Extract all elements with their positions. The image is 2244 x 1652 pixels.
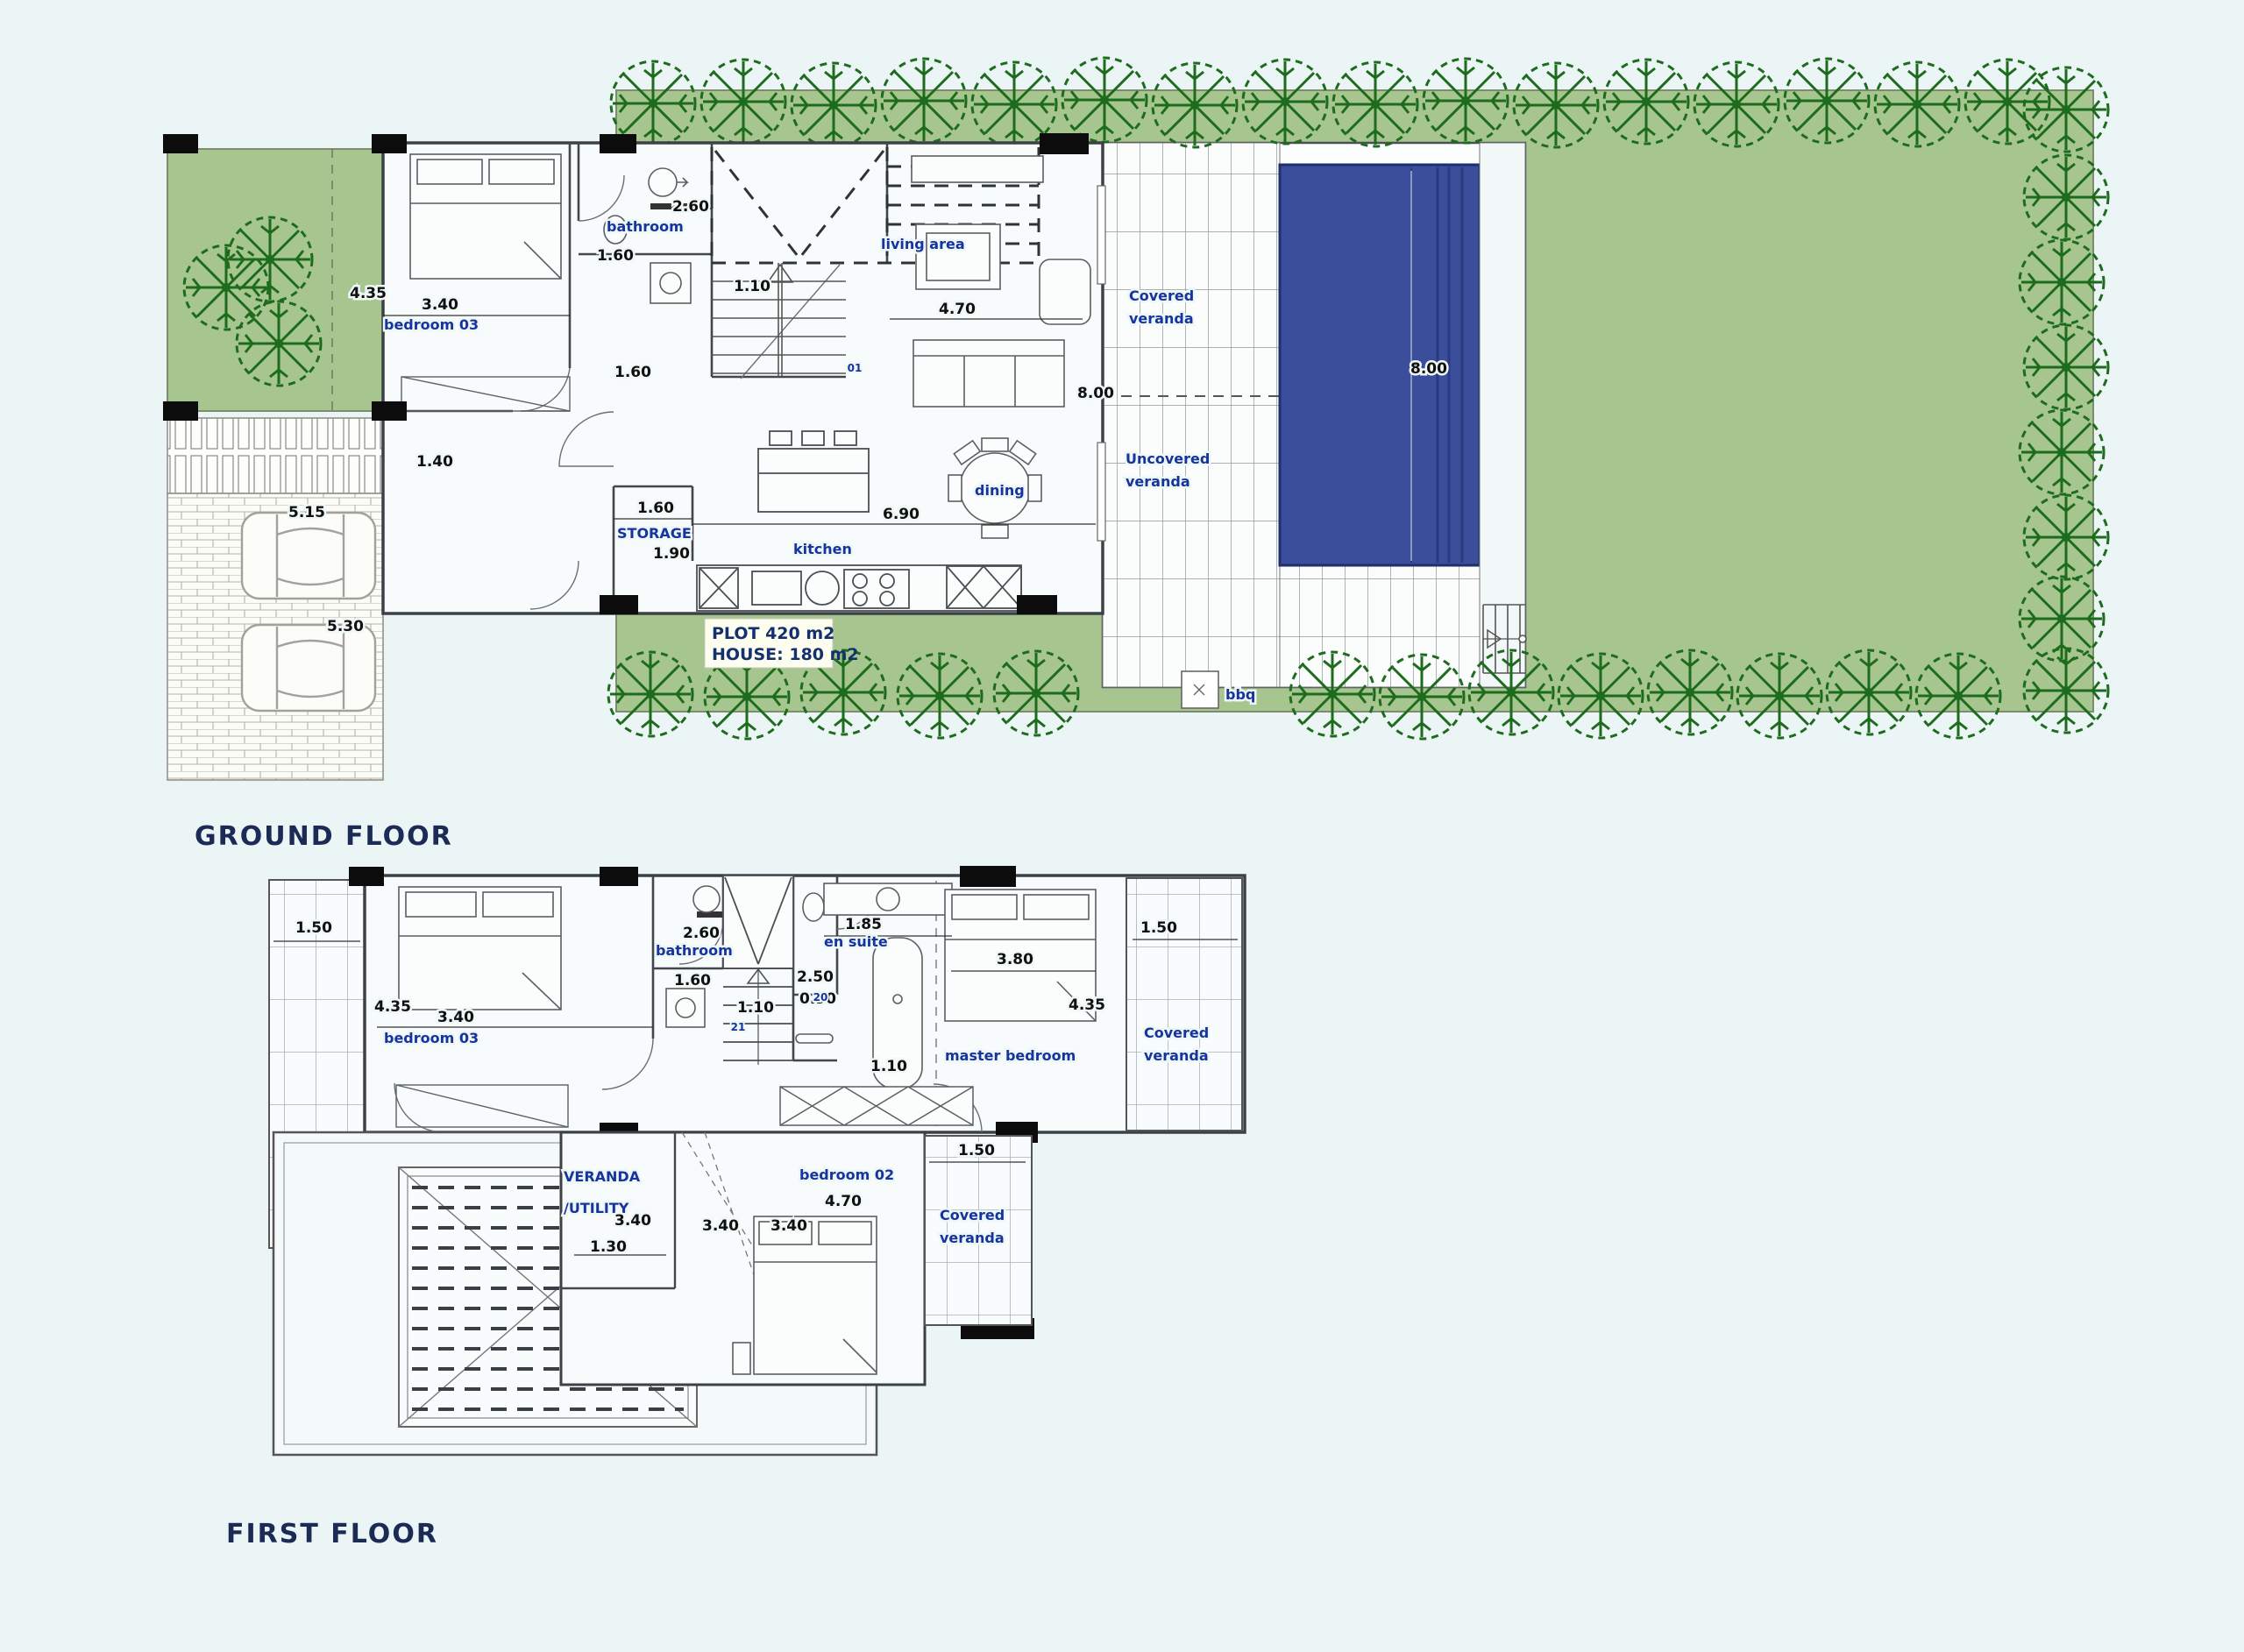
ff-dim-master-width: 3.80 <box>997 951 1033 968</box>
ff-bed3 <box>399 887 561 1010</box>
label-bathroom: bathroom <box>607 218 684 235</box>
dim-drive2: 5.30 <box>327 618 364 635</box>
coffee-table <box>916 224 1000 289</box>
sliding-door <box>1097 186 1105 284</box>
car <box>242 625 375 711</box>
label-bbq: bbq <box>1225 686 1255 703</box>
label-storage: STORAGE <box>617 525 692 542</box>
dim-storage-height: 1.90 <box>653 545 690 563</box>
ff-dim-bottom-veranda: 1.50 <box>958 1142 995 1159</box>
ff-dim-bed3-height: 4.35 <box>374 998 411 1016</box>
dim-storage-width: 1.60 <box>637 500 674 517</box>
sink-icon <box>693 886 720 912</box>
ff-label-covered-veranda-b1: Covered <box>940 1207 1005 1223</box>
ff-dim-void-width: 3.40 <box>702 1217 739 1235</box>
sliding-door <box>1097 443 1105 541</box>
ff-dim-bed2-depth: 3.40 <box>770 1217 807 1235</box>
label-living-area: living area <box>881 236 965 252</box>
ff-step-20: 20 <box>813 991 828 1003</box>
ff-dim-bed3-width: 3.40 <box>437 1009 474 1026</box>
ff-dim-utility-width: 3.40 <box>614 1212 651 1230</box>
ff-step-21: 21 <box>731 1021 746 1033</box>
ground-floor-plan: PLOT 420 m2 HOUSE: 180 m2 2.60 bathroom … <box>163 58 2108 852</box>
tv-bench <box>912 156 1043 182</box>
label-covered-veranda-2: veranda <box>1129 310 1194 327</box>
plot-area-text: PLOT 420 m2 <box>712 624 834 643</box>
dim-pool-length: 8.00 <box>1410 360 1447 378</box>
label-dining: dining <box>975 482 1025 499</box>
ff-label-bedroom03: bedroom 03 <box>384 1030 479 1046</box>
ground-floor-title: GROUND FLOOR <box>195 821 453 852</box>
label-covered-veranda-1: Covered <box>1129 287 1194 304</box>
dim-bed3-width: 3.40 <box>422 296 458 314</box>
ff-label-covered-veranda-r1: Covered <box>1144 1025 1209 1041</box>
label-kitchen: kitchen <box>793 541 852 557</box>
dim-kitchen-width: 6.90 <box>883 506 920 523</box>
ff-dim-bed2-width: 4.70 <box>825 1193 862 1210</box>
swimming-pool <box>1280 165 1480 565</box>
label-bedroom03: bedroom 03 <box>384 316 479 333</box>
floor-plan-sheet: PLOT 420 m2 HOUSE: 180 m2 2.60 bathroom … <box>0 0 2244 1652</box>
floor-plan-drawing: PLOT 420 m2 HOUSE: 180 m2 2.60 bathroom … <box>0 0 2244 1652</box>
ff-dim-left-veranda: 1.50 <box>295 919 332 937</box>
dim-bath-width: 2.60 <box>672 198 709 216</box>
veranda-tiles <box>1103 143 1280 687</box>
hob-icon <box>844 570 909 608</box>
driveway <box>167 493 383 780</box>
ff-dim-stair-width: 1.10 <box>737 999 774 1017</box>
ff-dim-wc-depth: 2.50 <box>797 968 834 986</box>
dim-hall: 1.60 <box>614 364 651 381</box>
house-area-text: HOUSE: 180 m2 <box>712 645 859 664</box>
ff-label-covered-veranda-b2: veranda <box>940 1230 1005 1246</box>
ff-dim-ensuite-width: 1.85 <box>845 916 882 933</box>
ff-label-master-bedroom: master bedroom <box>945 1047 1076 1064</box>
dim-living-width: 4.70 <box>939 301 976 318</box>
sink-icon <box>877 888 899 911</box>
ff-dim-bath-depth: 1.60 <box>674 972 711 989</box>
ff-bed2 <box>733 1216 877 1374</box>
dim-stair-width: 1.10 <box>734 278 770 295</box>
dim-bath-depth: 1.60 <box>597 247 634 265</box>
ff-dim-master-height: 4.35 <box>1069 996 1105 1014</box>
ff-dim-bath-width: 2.60 <box>683 925 720 942</box>
pergola-slats <box>167 418 383 493</box>
bbq-unit <box>1182 671 1218 708</box>
ff-label-veranda-utility-1: VERANDA <box>564 1168 641 1185</box>
dim-living-height: 8.00 <box>1077 385 1114 402</box>
ff-dim-hall: 1.10 <box>870 1058 907 1075</box>
kitchen-island <box>758 449 869 512</box>
veranda-pool-block <box>1103 143 1526 708</box>
ff-dim-right-veranda: 1.50 <box>1140 919 1177 937</box>
dim-drive1: 5.15 <box>288 504 325 521</box>
car <box>242 513 375 599</box>
kitchen-sink-icon <box>806 571 839 605</box>
ff-label-bedroom02: bedroom 02 <box>799 1166 894 1183</box>
sofa <box>913 340 1064 407</box>
label-uncovered-veranda-2: veranda <box>1126 473 1190 490</box>
ff-label-covered-veranda-r2: veranda <box>1144 1047 1209 1064</box>
ff-right-veranda <box>1126 878 1242 1131</box>
sink-icon <box>649 168 677 196</box>
ff-label-bathroom: bathroom <box>656 942 733 959</box>
first-floor-title: FIRST FLOOR <box>226 1519 438 1549</box>
first-floor-plan: 1.50 4.35 3.40 bedroom 03 2.60 bathroom … <box>226 866 1245 1549</box>
ff-label-ensuite: en suite <box>824 933 888 950</box>
label-door-01: 01 <box>848 362 863 374</box>
pool-walkway <box>1480 143 1525 687</box>
ff-dim-utility-depth: 1.30 <box>590 1238 627 1256</box>
dim-bed3-height: 4.35 <box>350 285 387 302</box>
shower-tray <box>796 1034 833 1043</box>
ff-wardrobe-row <box>780 1087 973 1125</box>
armchair <box>1040 259 1090 324</box>
label-uncovered-veranda-1: Uncovered <box>1126 450 1210 467</box>
dim-entry: 1.40 <box>416 453 453 471</box>
bed-double <box>410 154 561 279</box>
garden <box>167 149 383 411</box>
toilet-icon <box>803 893 824 921</box>
